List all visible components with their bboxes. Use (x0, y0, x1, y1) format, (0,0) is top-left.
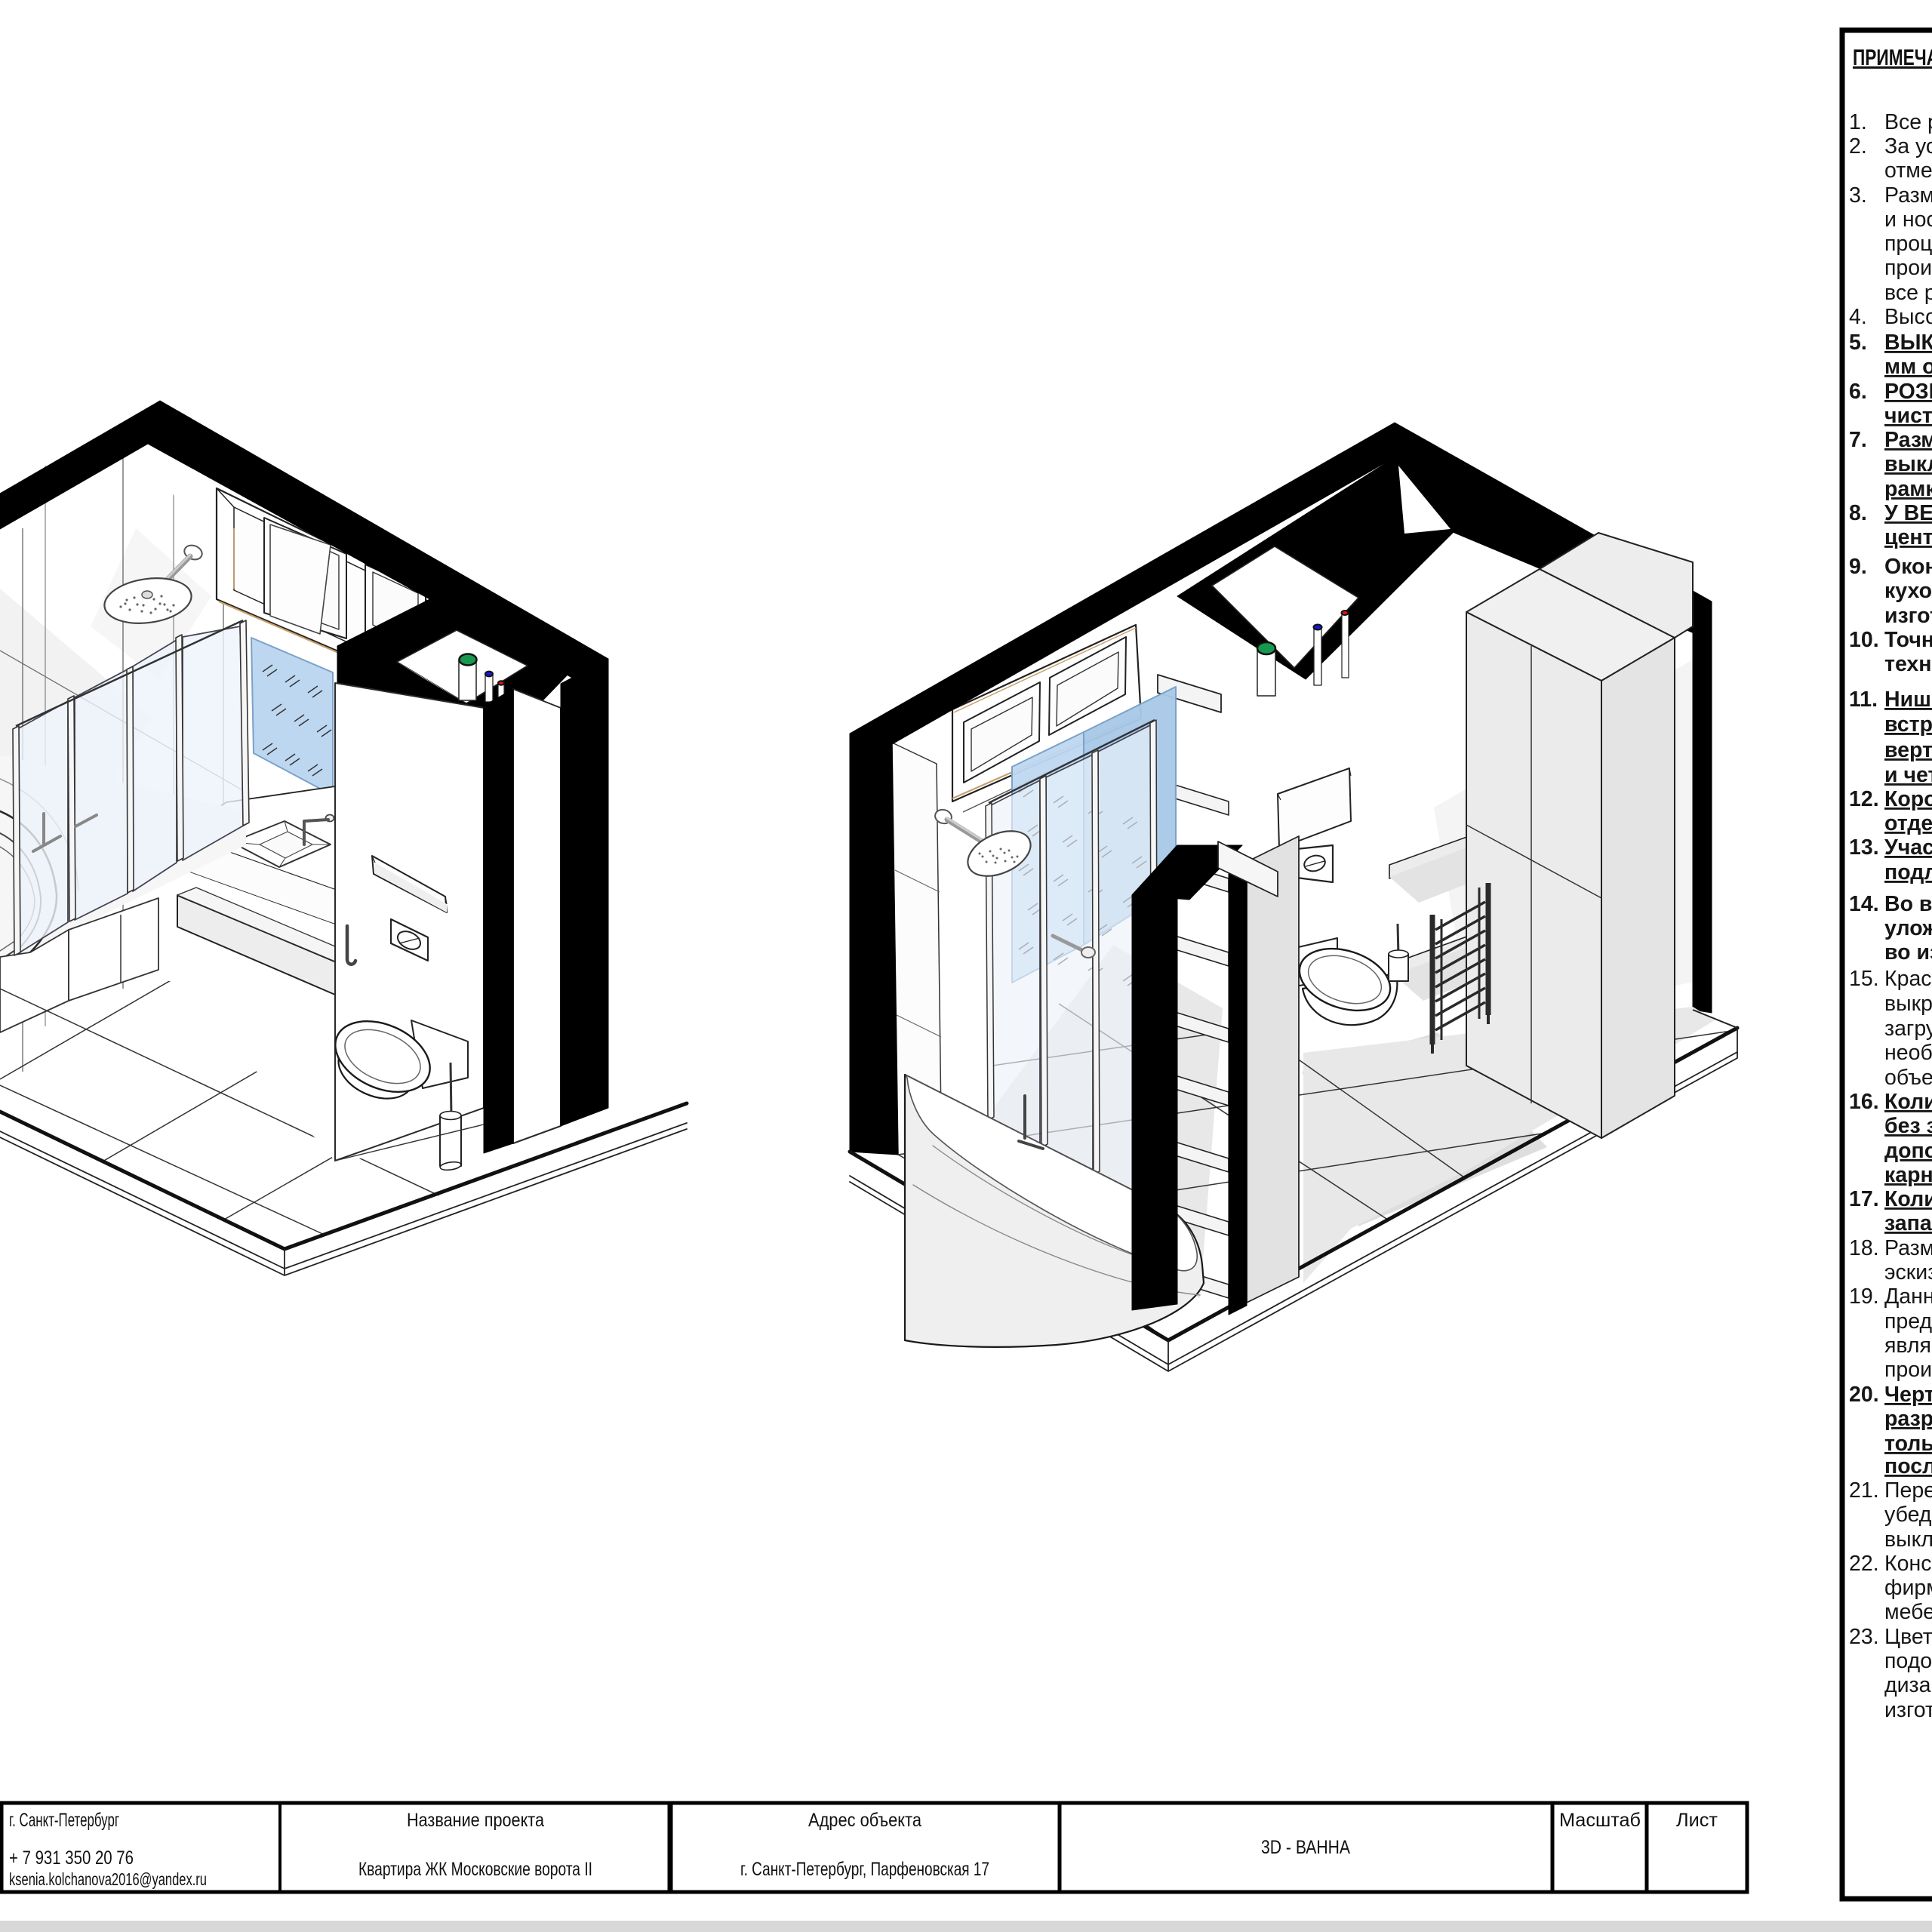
svg-text:7.: 7. (1849, 428, 1867, 452)
svg-text:предвари: предвари (1884, 1309, 1932, 1334)
svg-text:выключат: выключат (1884, 1527, 1932, 1552)
svg-text:19.: 19. (1849, 1284, 1879, 1309)
svg-text:12.: 12. (1849, 787, 1879, 811)
svg-text:убедитьс: убедитьс (1884, 1503, 1932, 1527)
svg-text:эскизные: эскизные (1884, 1260, 1932, 1284)
svg-text:производ: производ (1884, 256, 1932, 280)
svg-text:выключа: выключа (1884, 452, 1932, 476)
svg-text:встраива: встраива (1884, 712, 1932, 737)
svg-text:Количест: Количест (1884, 1090, 1932, 1114)
svg-text:+ 7 931 350 20 76: + 7 931 350 20 76 (9, 1847, 134, 1869)
svg-text:чистого п: чистого п (1884, 404, 1932, 428)
svg-text:У ВЕРТИК: У ВЕРТИК (1884, 501, 1932, 525)
svg-text:без запа: без запа (1884, 1114, 1932, 1138)
svg-text:10.: 10. (1849, 628, 1879, 652)
svg-text:только по: только по (1884, 1432, 1932, 1456)
svg-text:13.: 13. (1849, 835, 1879, 860)
svg-text:ksenia.kolchanova2016@yandex.r: ksenia.kolchanova2016@yandex.ru (9, 1869, 207, 1889)
svg-text:Коробка: Коробка (1884, 787, 1932, 811)
svg-text:фирмой и: фирмой и (1884, 1576, 1932, 1600)
svg-text:РОЗЕТКИ: РОЗЕТКИ (1884, 380, 1932, 404)
svg-text:Точный р: Точный р (1884, 628, 1932, 652)
svg-text:1.: 1. (1849, 110, 1867, 134)
svg-text:Адрес объекта: Адрес объекта (808, 1810, 921, 1831)
svg-text:центрок: центрок (1884, 525, 1932, 549)
svg-text:Ниши по: Ниши по (1884, 688, 1932, 712)
svg-text:5.: 5. (1849, 331, 1867, 355)
svg-text:г. Санкт-Петербург: г. Санкт-Петербург (9, 1810, 119, 1831)
svg-text:Масштаб: Масштаб (1559, 1810, 1641, 1831)
svg-text:мебели и: мебели и (1884, 1600, 1932, 1624)
svg-text:являются: являются (1884, 1334, 1932, 1358)
svg-text:необходи: необходи (1884, 1041, 1932, 1065)
svg-text:дополни: дополни (1884, 1139, 1932, 1163)
svg-text:17.: 17. (1849, 1187, 1879, 1211)
svg-text:рамки.: рамки. (1884, 477, 1932, 501)
svg-text:Конструк: Конструк (1884, 1552, 1932, 1576)
svg-text:Размеры: Размеры (1884, 428, 1932, 452)
svg-text:9.: 9. (1849, 555, 1867, 579)
svg-text:г. Санкт-Петербург, Парфеновск: г. Санкт-Петербург, Парфеновская 17 (740, 1859, 989, 1880)
svg-text:производ: производ (1884, 1358, 1932, 1382)
svg-text:ВЫКЛЮЧ: ВЫКЛЮЧ (1884, 331, 1932, 355)
svg-text:отметка: отметка (1884, 158, 1932, 183)
svg-text:Количест: Количест (1884, 1187, 1932, 1211)
svg-text:техничес: техничес (1884, 652, 1932, 676)
svg-text:Название проекта: Название проекта (407, 1810, 544, 1831)
svg-text:22.: 22. (1849, 1552, 1879, 1576)
svg-text:Все разм: Все разм (1884, 110, 1932, 134)
svg-text:изготовл: изготовл (1884, 1698, 1932, 1722)
svg-text:3D - ВАННА: 3D - ВАННА (1261, 1837, 1350, 1858)
svg-text:Краски и: Краски и (1884, 967, 1932, 991)
svg-text:Чертежи: Чертежи (1884, 1383, 1932, 1407)
svg-text:11.: 11. (1849, 688, 1878, 712)
svg-text:Окончат: Окончат (1884, 555, 1932, 579)
svg-text:кухонной: кухонной (1884, 579, 1932, 603)
svg-text:Квартира ЖК Московские ворота: Квартира ЖК Московские ворота II (358, 1859, 592, 1880)
svg-text:Лист: Лист (1676, 1810, 1718, 1831)
svg-text:вертикал: вертикал (1884, 738, 1932, 762)
svg-text:14.: 14. (1849, 892, 1879, 916)
svg-text:2.: 2. (1849, 134, 1867, 158)
svg-text:Размеры: Размеры (1884, 183, 1932, 208)
svg-text:изготовл: изготовл (1884, 604, 1932, 628)
svg-text:все разм: все разм (1884, 281, 1932, 305)
svg-text:16.: 16. (1849, 1090, 1879, 1114)
svg-text:уложить п: уложить п (1884, 916, 1932, 940)
svg-text:объекте.: объекте. (1884, 1066, 1932, 1090)
svg-text:23.: 23. (1849, 1625, 1879, 1649)
svg-text:мм от чис: мм от чис (1884, 355, 1932, 379)
svg-text:18.: 18. (1849, 1236, 1879, 1260)
svg-text:4.: 4. (1849, 305, 1867, 329)
svg-text:карнизов: карнизов (1884, 1163, 1932, 1187)
svg-text:и носят с: и носят с (1884, 208, 1932, 232)
svg-text:20.: 20. (1849, 1383, 1879, 1407)
svg-text:Во время: Во время (1884, 892, 1932, 916)
svg-text:запаса 1: запаса 1 (1884, 1211, 1932, 1235)
svg-text:Данные ч: Данные ч (1884, 1284, 1932, 1309)
svg-text:выкрасы: выкрасы (1884, 992, 1932, 1016)
svg-text:15.: 15. (1849, 967, 1879, 991)
svg-text:Перед на: Перед на (1884, 1478, 1932, 1503)
svg-text:процессе: процессе (1884, 232, 1932, 256)
svg-text:во избеж: во избеж (1884, 940, 1932, 964)
svg-text:Размеры: Размеры (1884, 1236, 1932, 1260)
svg-text:3.: 3. (1849, 183, 1867, 208)
svg-text:после со: после со (1884, 1454, 1932, 1478)
svg-text:загрунто: загрунто (1884, 1017, 1932, 1041)
svg-text:подобрат: подобрат (1884, 1649, 1932, 1673)
svg-text:Высота ч: Высота ч (1884, 305, 1932, 329)
svg-text:ПРИМЕЧАНИЯ: ПРИМЕЧАНИЯ (1853, 45, 1932, 70)
svg-text:и четкие: и четкие (1884, 763, 1932, 787)
svg-text:Цвет мат: Цвет мат (1884, 1625, 1932, 1649)
svg-text:6.: 6. (1849, 380, 1867, 404)
svg-text:разработ: разработ (1884, 1407, 1932, 1431)
svg-text:Участки: Участки (1884, 835, 1932, 860)
svg-text:подлежат: подлежат (1884, 860, 1932, 884)
svg-text:отделке с: отделке с (1884, 811, 1932, 835)
svg-text:За услов: За услов (1884, 134, 1932, 158)
svg-text:21.: 21. (1849, 1478, 1879, 1503)
svg-text:8.: 8. (1849, 501, 1867, 525)
svg-text:дизайнер: дизайнер (1884, 1673, 1932, 1697)
